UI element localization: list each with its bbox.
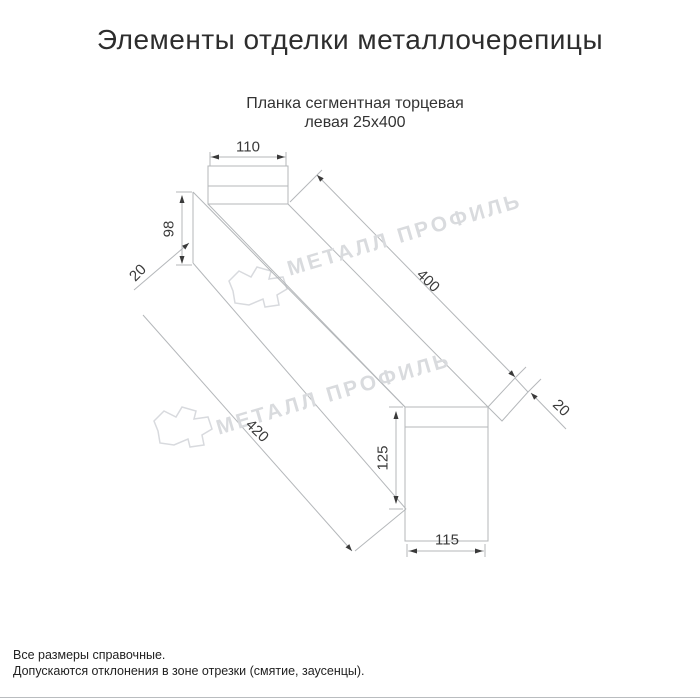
dimension-label-115: 115 (435, 532, 459, 549)
dimension-label-98: 98 (161, 221, 178, 238)
footer-note-line2: Допускаются отклонения в зоне отрезки (с… (13, 663, 365, 679)
footer-notes: Все размеры справочные. Допускаются откл… (13, 647, 365, 679)
technical-drawing (0, 0, 700, 700)
catalog-drawing-page: Элементы отделки металлочерепицы Планка … (0, 0, 700, 700)
bottom-divider (0, 697, 700, 698)
dimension-label-110: 110 (236, 139, 260, 156)
dimension-label-125: 125 (375, 445, 392, 470)
footer-note-line1: Все размеры справочные. (13, 647, 365, 663)
